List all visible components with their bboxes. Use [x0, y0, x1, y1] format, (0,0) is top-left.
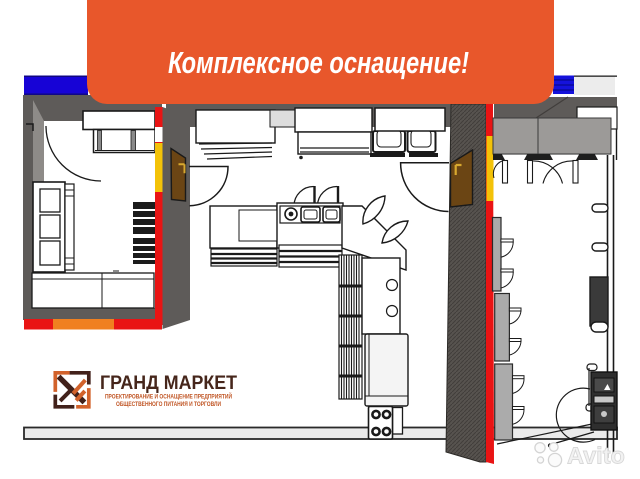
svg-text:ГРАНД МАРКЕТ: ГРАНД МАРКЕТ: [100, 373, 237, 394]
svg-text:Комплексное оснащение!: Комплексное оснащение!: [168, 45, 469, 80]
svg-text:Avito: Avito: [567, 443, 625, 469]
svg-text:ПРОЕКТИРОВАНИЕ И ОСНАЩЕНИЕ ПРЕ: ПРОЕКТИРОВАНИЕ И ОСНАЩЕНИЕ ПРЕДПРИЯТИЙ: [105, 392, 232, 401]
svg-text:ОБЩЕСТВЕННОГО ПИТАНИЯ И ТОРГОВ: ОБЩЕСТВЕННОГО ПИТАНИЯ И ТОРГОВЛИ: [116, 401, 221, 408]
